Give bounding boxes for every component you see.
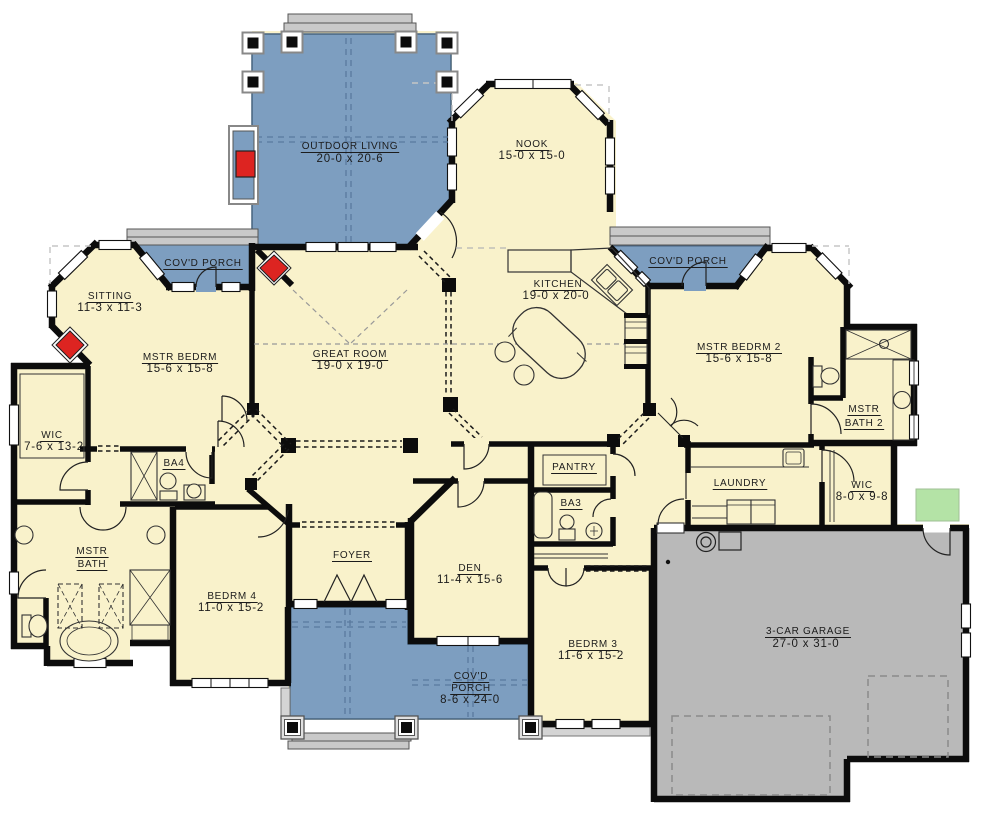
svg-text:27-0 x 31-0: 27-0 x 31-0 bbox=[773, 638, 840, 650]
svg-text:COV'D PORCH: COV'D PORCH bbox=[164, 258, 241, 269]
svg-text:19-0 x 19-0: 19-0 x 19-0 bbox=[317, 360, 384, 372]
svg-text:BA3: BA3 bbox=[560, 498, 581, 509]
svg-text:COV'D: COV'D bbox=[454, 671, 488, 682]
svg-text:NOOK: NOOK bbox=[516, 139, 548, 150]
svg-text:7-6 x 13-2: 7-6 x 13-2 bbox=[24, 441, 84, 453]
svg-text:19-0 x 20-0: 19-0 x 20-0 bbox=[523, 290, 590, 302]
svg-text:KITCHEN: KITCHEN bbox=[534, 279, 583, 290]
svg-text:11-6 x 15-2: 11-6 x 15-2 bbox=[558, 650, 624, 662]
svg-text:BATH: BATH bbox=[78, 559, 107, 570]
svg-text:20-0 x 20-6: 20-0 x 20-6 bbox=[317, 153, 384, 165]
svg-text:15-6 x 15-8: 15-6 x 15-8 bbox=[147, 363, 214, 375]
svg-text:OUTDOOR LIVING: OUTDOOR LIVING bbox=[302, 141, 398, 152]
svg-text:8-6 x 24-0: 8-6 x 24-0 bbox=[440, 694, 500, 706]
svg-text:MSTR: MSTR bbox=[76, 546, 107, 557]
svg-text:COV'D PORCH: COV'D PORCH bbox=[649, 256, 726, 267]
svg-text:8-0 x 9-8: 8-0 x 9-8 bbox=[836, 491, 889, 503]
svg-text:15-6 x 15-8: 15-6 x 15-8 bbox=[706, 353, 773, 365]
svg-text:DEN: DEN bbox=[458, 563, 481, 574]
svg-text:MSTR BEDRM: MSTR BEDRM bbox=[143, 352, 217, 363]
svg-text:MSTR BEDRM 2: MSTR BEDRM 2 bbox=[697, 342, 781, 353]
svg-text:BATH 2: BATH 2 bbox=[845, 418, 883, 429]
svg-text:WIC: WIC bbox=[851, 480, 873, 491]
svg-text:11-0 x 15-2: 11-0 x 15-2 bbox=[198, 602, 264, 614]
svg-text:LAUNDRY: LAUNDRY bbox=[714, 478, 767, 489]
svg-text:BEDRM 4: BEDRM 4 bbox=[207, 591, 256, 602]
svg-text:11-4 x 15-6: 11-4 x 15-6 bbox=[437, 574, 503, 586]
svg-text:11-3 x 11-3: 11-3 x 11-3 bbox=[77, 302, 142, 314]
svg-text:BA4: BA4 bbox=[163, 458, 184, 469]
svg-text:FOYER: FOYER bbox=[333, 550, 371, 561]
svg-text:PANTRY: PANTRY bbox=[552, 462, 596, 473]
svg-text:15-0 x 15-0: 15-0 x 15-0 bbox=[499, 150, 566, 162]
svg-text:WIC: WIC bbox=[41, 430, 63, 441]
svg-text:BEDRM 3: BEDRM 3 bbox=[568, 639, 617, 650]
svg-text:MSTR: MSTR bbox=[848, 404, 879, 415]
svg-text:SITTING: SITTING bbox=[88, 291, 132, 302]
svg-text:3-CAR GARAGE: 3-CAR GARAGE bbox=[766, 626, 850, 637]
svg-text:GREAT ROOM: GREAT ROOM bbox=[313, 349, 387, 360]
svg-text:PORCH: PORCH bbox=[451, 683, 491, 694]
